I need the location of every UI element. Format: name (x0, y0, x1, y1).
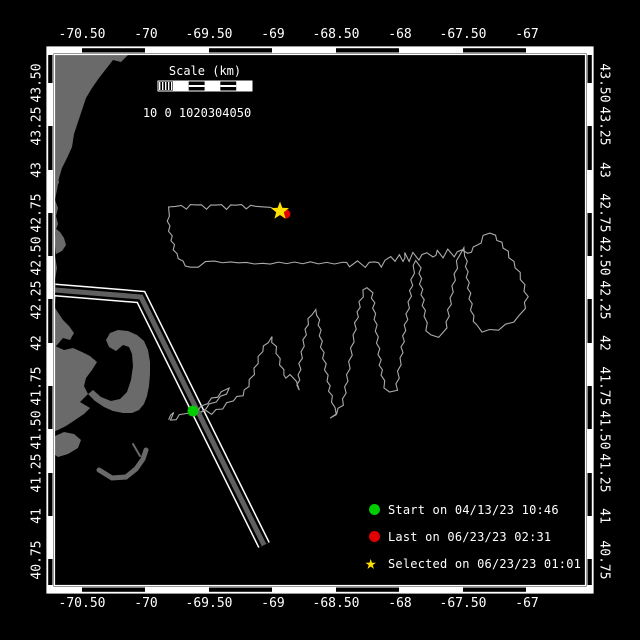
axis-label-lat-left-5: 42.25 (30, 280, 45, 319)
axis-label-lat-right-2: 43 (597, 162, 612, 178)
axis-label-lat-right-4: 42.50 (597, 236, 612, 275)
tag-track-map: -70.50-70.50-70-70-69.50-69.50-69-69-68.… (0, 0, 640, 640)
axis-label-lat-left-4: 42.50 (30, 236, 45, 275)
axis-label-lon-top-6: -67.50 (440, 27, 487, 42)
axis-label-lon-top-2: -69.50 (186, 27, 233, 42)
axis-label-lat-right-9: 41.25 (597, 453, 612, 492)
axis-label-lat-left-1: 43.25 (30, 106, 45, 145)
axis-label-lon-bottom-3: -69 (261, 596, 284, 611)
axis-label-lon-top-7: -67 (515, 27, 538, 42)
start-dot-icon (362, 504, 388, 515)
axis-label-lon-top-5: -68 (388, 27, 411, 42)
axis-label-lon-bottom-7: -67 (515, 596, 538, 611)
axis-label-lat-left-6: 42 (30, 335, 45, 351)
selected-star-icon: ★ (362, 554, 388, 573)
axis-label-lon-bottom-0: -70.50 (59, 596, 106, 611)
scale-bar-numbers: 10 0 1020304050 (143, 106, 251, 120)
map-layers (55, 55, 528, 545)
axis-label-lat-right-1: 43.25 (597, 106, 612, 145)
axis-label-lat-left-9: 41.25 (30, 453, 45, 492)
scale-bar-title: Scale (km) (169, 64, 241, 78)
start-marker[interactable] (188, 406, 199, 417)
axis-label-lon-top-3: -69 (261, 27, 284, 42)
axis-label-lat-left-10: 41 (30, 508, 45, 524)
legend-item-start: Start on 04/13/23 10:46 (362, 496, 581, 523)
legend-selected-label: Selected on 06/23/23 01:01 (388, 557, 581, 571)
shipping-lane (55, 290, 264, 545)
scale-bar (158, 81, 252, 91)
axis-label-lon-bottom-2: -69.50 (186, 596, 233, 611)
legend-item-last: Last on 06/23/23 02:31 (362, 523, 581, 550)
axis-label-lat-right-8: 41.50 (597, 410, 612, 449)
axis-label-lat-left-2: 43 (30, 162, 45, 178)
axis-label-lon-top-1: -70 (134, 27, 157, 42)
legend-item-selected: ★ Selected on 06/23/23 01:01 (362, 550, 581, 577)
axis-label-lat-right-6: 42 (597, 335, 612, 351)
coastline (55, 55, 150, 478)
legend: Start on 04/13/23 10:46 Last on 06/23/23… (362, 496, 581, 577)
last-dot-icon (362, 531, 388, 542)
legend-last-label: Last on 06/23/23 02:31 (388, 530, 551, 544)
axis-label-lat-right-0: 43.50 (597, 63, 612, 102)
axis-label-lat-left-7: 41.75 (30, 366, 45, 405)
axis-label-lat-right-3: 42.75 (597, 193, 612, 232)
axis-label-lat-left-8: 41.50 (30, 410, 45, 449)
axis-label-lon-top-0: -70.50 (59, 27, 106, 42)
axis-label-lat-right-11: 40.75 (597, 540, 612, 579)
axis-label-lat-left-11: 40.75 (30, 540, 45, 579)
track-path[interactable] (167, 205, 528, 420)
axis-label-lat-left-3: 42.75 (30, 193, 45, 232)
axis-label-lat-right-7: 41.75 (597, 366, 612, 405)
axis-label-lon-bottom-6: -67.50 (440, 596, 487, 611)
axis-label-lat-left-0: 43.50 (30, 63, 45, 102)
axis-label-lon-bottom-4: -68.50 (313, 596, 360, 611)
axis-label-lon-bottom-5: -68 (388, 596, 411, 611)
axis-label-lon-bottom-1: -70 (134, 596, 157, 611)
legend-start-label: Start on 04/13/23 10:46 (388, 503, 559, 517)
axis-label-lon-top-4: -68.50 (313, 27, 360, 42)
axis-label-lat-right-10: 41 (597, 508, 612, 524)
axis-label-lat-right-5: 42.25 (597, 280, 612, 319)
